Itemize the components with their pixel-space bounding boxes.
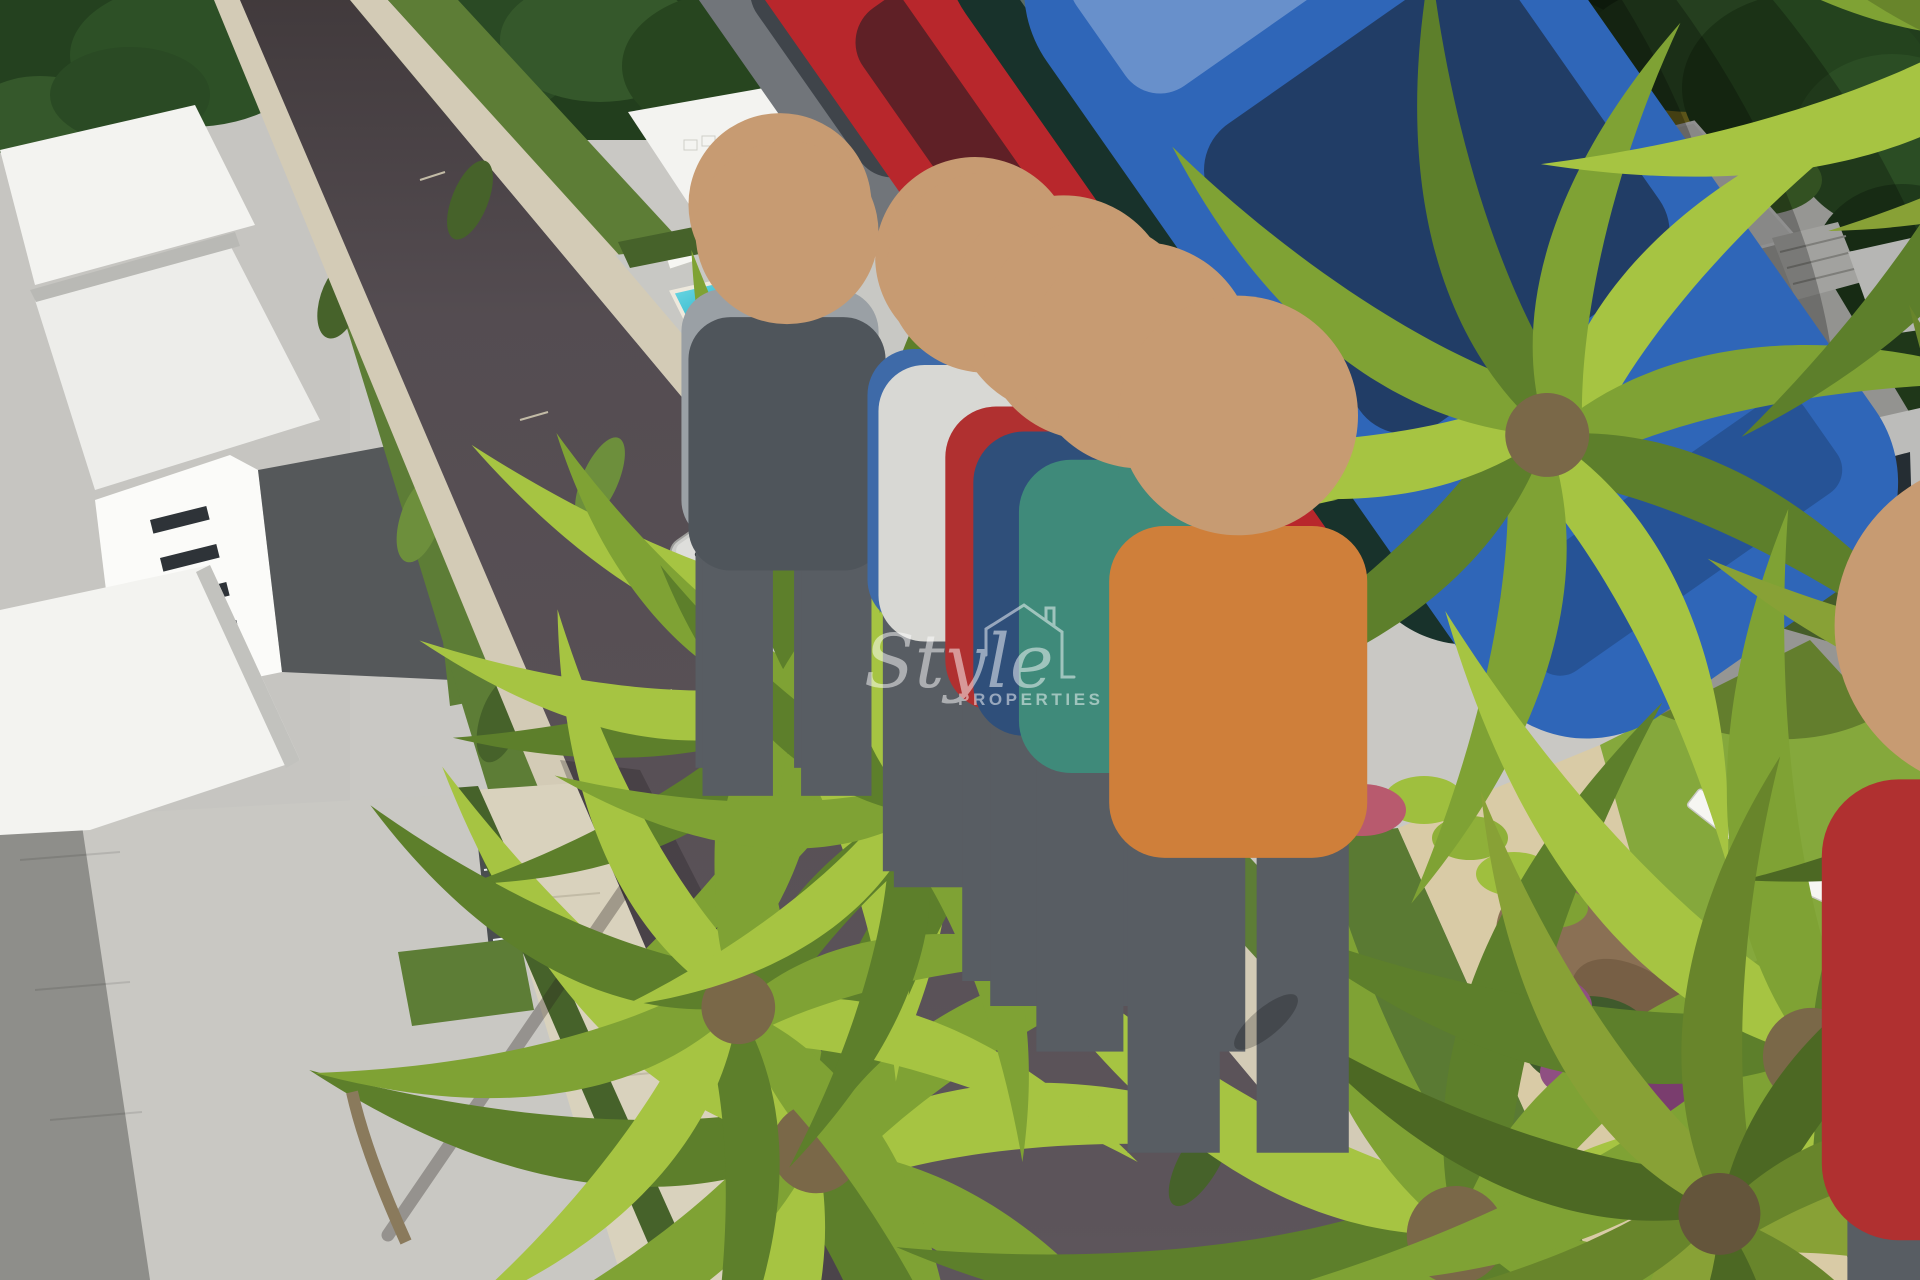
watermark-caps-text: PROPERTIES xyxy=(958,690,1104,709)
render-canvas: Style PROPERTIES xyxy=(0,0,1920,1280)
screenshot-root: Style PROPERTIES xyxy=(0,0,1920,1280)
patio-chair xyxy=(684,140,697,150)
